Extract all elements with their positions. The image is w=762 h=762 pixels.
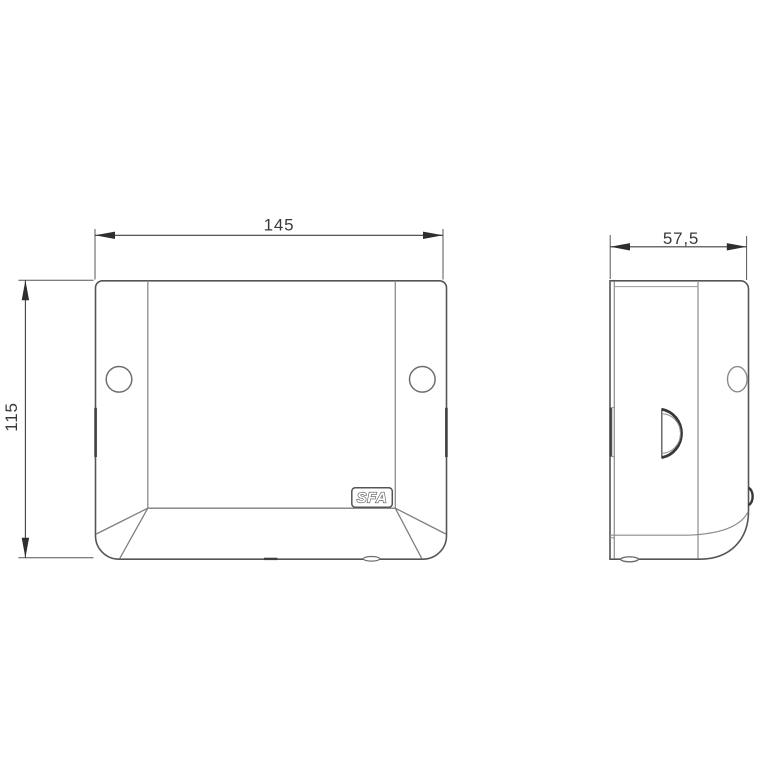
- arrow-left-icon: [610, 243, 630, 250]
- sfa-logo: SFA: [352, 488, 393, 507]
- dimension-front-height: 115: [2, 280, 94, 558]
- side-hole-oval: [728, 367, 748, 392]
- arrow-right-icon: [423, 232, 443, 239]
- mounting-hole-right: [410, 367, 436, 393]
- arrow-left-icon: [95, 232, 115, 239]
- mounting-hole-left: [106, 367, 132, 393]
- dimension-drawing: SFA 145 115: [0, 0, 762, 762]
- front-view: SFA: [96, 281, 447, 561]
- arrow-down-icon: [22, 538, 29, 558]
- dimension-side-depth: 57,5: [610, 229, 746, 280]
- side-view: [610, 281, 753, 562]
- height-dimension-value: 115: [2, 402, 21, 432]
- arrow-up-icon: [22, 280, 29, 300]
- depth-dimension-value: 57,5: [663, 229, 699, 248]
- arrow-right-icon: [727, 243, 747, 250]
- width-dimension-value: 145: [264, 216, 295, 235]
- front-bottom-oval: [363, 557, 379, 562]
- technical-drawing-canvas: SFA 145 115: [0, 0, 762, 762]
- side-bottom-foot: [621, 557, 639, 562]
- sfa-logo-text: SFA: [357, 490, 388, 507]
- dimension-front-width: 145: [95, 216, 443, 280]
